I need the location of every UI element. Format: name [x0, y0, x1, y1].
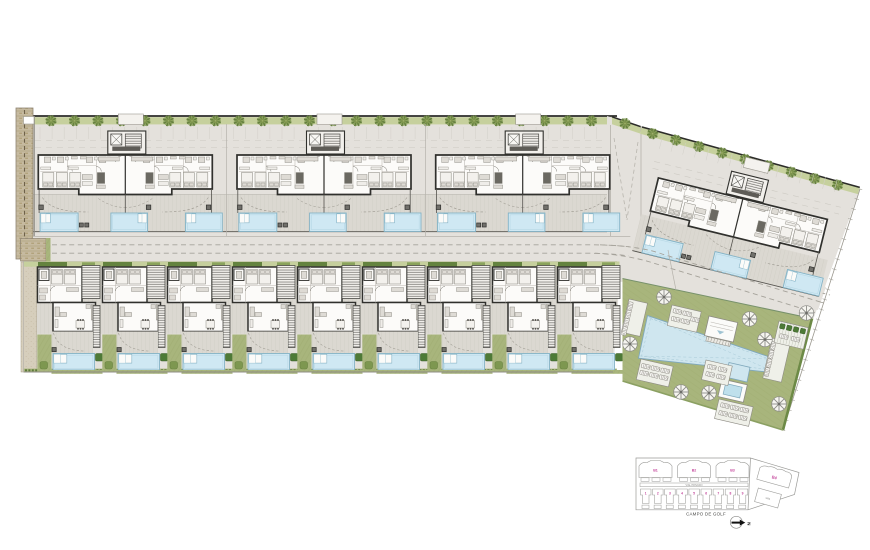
svg-text:7: 7 — [717, 491, 719, 495]
svg-text:B3: B3 — [730, 469, 735, 473]
svg-text:5: 5 — [693, 491, 695, 495]
svg-text:9: 9 — [742, 491, 744, 495]
svg-text:6: 6 — [705, 491, 707, 495]
svg-text:VIAL PRIVADO: VIAL PRIVADO — [685, 484, 702, 487]
svg-text:4: 4 — [681, 491, 683, 495]
svg-text:B2: B2 — [692, 469, 697, 473]
svg-text:8: 8 — [729, 491, 731, 495]
svg-text:3: 3 — [669, 491, 671, 495]
svg-text:2: 2 — [657, 491, 659, 495]
svg-text:N: N — [746, 522, 751, 525]
svg-text:CAMPO DE GOLF: CAMPO DE GOLF — [686, 511, 726, 516]
svg-text:1: 1 — [645, 491, 647, 495]
svg-text:B1: B1 — [653, 469, 658, 473]
